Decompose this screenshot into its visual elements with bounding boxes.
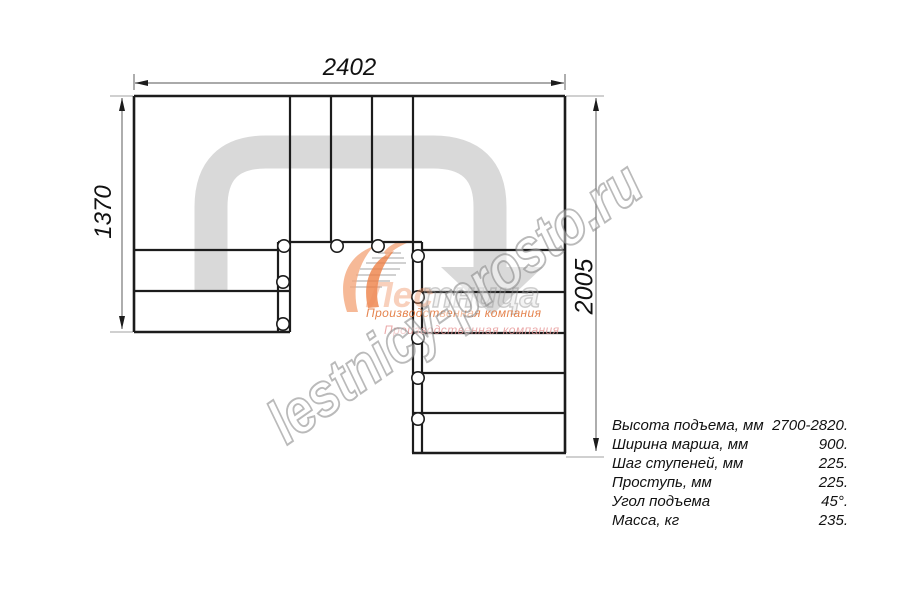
spec-value: 900. — [819, 435, 848, 454]
spec-label: Шаг ступеней, мм — [612, 454, 743, 473]
spec-row: Масса, кг 235. — [612, 511, 848, 530]
dimension-height-right-label: 2005 — [571, 207, 600, 367]
logo-tagline-shadow: Производственная компания — [384, 323, 559, 337]
spec-row: Высота подъема, мм 2700-2820. — [612, 416, 848, 435]
spec-value: 225. — [819, 473, 848, 492]
spec-value: 225. — [819, 454, 848, 473]
staircase-drawing-page: 2402 1370 2005 Лес тница Производственна… — [0, 0, 900, 600]
spec-value: 235. — [819, 511, 848, 530]
dimension-width-label: 2402 — [134, 54, 565, 82]
spec-label: Ширина марша, мм — [612, 435, 748, 454]
spec-label: Масса, кг — [612, 511, 679, 530]
spec-value: 2700-2820. — [772, 416, 848, 435]
spec-row: Угол подъема 45°. — [612, 492, 848, 511]
spec-table: Высота подъема, мм 2700-2820. Ширина мар… — [612, 416, 848, 530]
spec-label: Проступь, мм — [612, 473, 712, 492]
spec-row: Ширина марша, мм 900. — [612, 435, 848, 454]
spec-row: Шаг ступеней, мм 225. — [612, 454, 848, 473]
spec-value: 45°. — [821, 492, 848, 511]
dimension-height-left-label: 1370 — [90, 132, 118, 292]
spec-label: Угол подъема — [612, 492, 710, 511]
spec-row: Проступь, мм 225. — [612, 473, 848, 492]
logo-tagline: Производственная компания — [366, 306, 541, 320]
spec-label: Высота подъема, мм — [612, 416, 764, 435]
